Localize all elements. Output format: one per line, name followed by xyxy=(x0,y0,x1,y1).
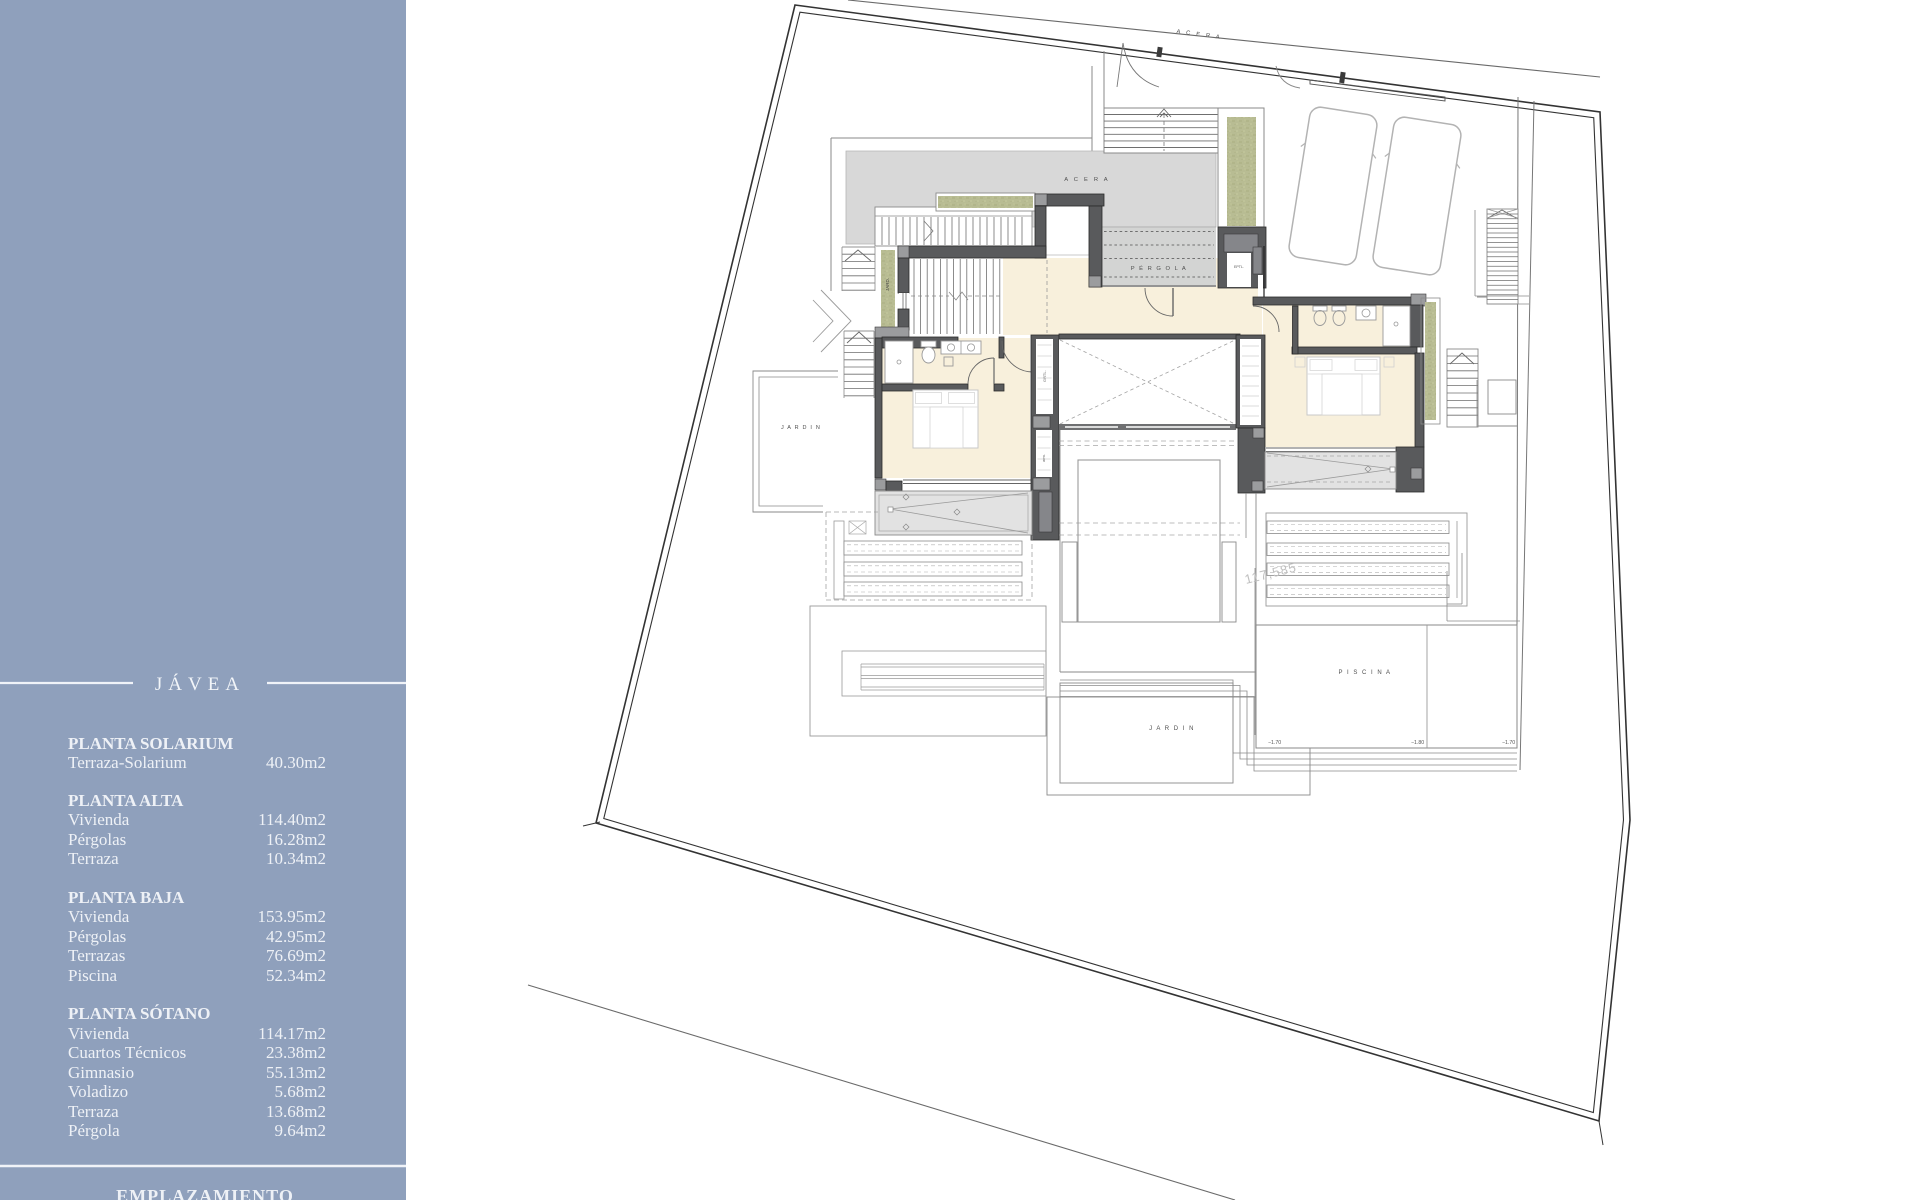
svg-text:P I S C I N A: P I S C I N A xyxy=(1338,670,1391,676)
svg-text:Terrazas: Terrazas xyxy=(68,946,125,965)
svg-text:40.30m2: 40.30m2 xyxy=(266,753,326,772)
svg-text:JÁVEA: JÁVEA xyxy=(155,673,245,695)
svg-text:Vivienda: Vivienda xyxy=(68,810,130,829)
svg-text:52.34m2: 52.34m2 xyxy=(266,966,326,985)
svg-text:10.34m2: 10.34m2 xyxy=(266,849,326,868)
svg-text:J A R D I N: J A R D I N xyxy=(1149,726,1195,732)
svg-text:−1.70: −1.70 xyxy=(1502,740,1515,746)
svg-text:Gimnasio: Gimnasio xyxy=(68,1063,134,1082)
svg-text:Voladizo: Voladizo xyxy=(68,1082,128,1101)
svg-text:153.95m2: 153.95m2 xyxy=(258,907,326,926)
svg-text:Piscina: Piscina xyxy=(68,966,118,985)
svg-text:J A R D I N: J A R D I N xyxy=(781,425,821,431)
svg-text:GRTL.: GRTL. xyxy=(1042,370,1047,382)
svg-text:Cuartos Técnicos: Cuartos Técnicos xyxy=(68,1043,186,1062)
svg-text:5.68m2: 5.68m2 xyxy=(275,1082,326,1101)
svg-text:23.38m2: 23.38m2 xyxy=(266,1043,326,1062)
svg-text:Vivienda: Vivienda xyxy=(68,1024,130,1043)
svg-text:42.95m2: 42.95m2 xyxy=(266,927,326,946)
svg-text:PLANTA BAJA: PLANTA BAJA xyxy=(68,888,185,907)
svg-text:−1.70: −1.70 xyxy=(1268,740,1281,746)
svg-text:arm.: arm. xyxy=(1041,454,1046,462)
svg-text:114.17m2: 114.17m2 xyxy=(258,1024,326,1043)
svg-text:Terraza: Terraza xyxy=(68,1102,119,1121)
svg-text:13.68m2: 13.68m2 xyxy=(266,1102,326,1121)
svg-text:PLANTA SÓTANO: PLANTA SÓTANO xyxy=(68,1004,210,1023)
svg-text:EPTL.: EPTL. xyxy=(1234,265,1244,269)
svg-text:Vivienda: Vivienda xyxy=(68,907,130,926)
svg-text:9.64m2: 9.64m2 xyxy=(275,1121,326,1140)
svg-text:16.28m2: 16.28m2 xyxy=(266,830,326,849)
svg-text:EMPLAZAMIENTO: EMPLAZAMIENTO xyxy=(116,1186,294,1200)
svg-text:P É R G O L A: P É R G O L A xyxy=(1131,265,1188,272)
svg-text:Pérgola: Pérgola xyxy=(68,1121,120,1140)
svg-text:114.40m2: 114.40m2 xyxy=(258,810,326,829)
svg-text:A C E R A: A C E R A xyxy=(1064,177,1110,183)
svg-text:Terraza-Solarium: Terraza-Solarium xyxy=(68,753,187,772)
svg-text:A C E R A: A C E R A xyxy=(1176,29,1222,41)
svg-text:JARD.: JARD. xyxy=(885,278,890,291)
svg-text:−1.80: −1.80 xyxy=(1411,740,1424,746)
svg-text:PLANTA SOLARIUM: PLANTA SOLARIUM xyxy=(68,734,233,753)
svg-text:Terraza: Terraza xyxy=(68,849,119,868)
svg-text:PLANTA ALTA: PLANTA ALTA xyxy=(68,791,184,810)
svg-text:76.69m2: 76.69m2 xyxy=(266,946,326,965)
svg-text:Pérgolas: Pérgolas xyxy=(68,927,126,946)
svg-text:55.13m2: 55.13m2 xyxy=(266,1063,326,1082)
svg-text:Pérgolas: Pérgolas xyxy=(68,830,126,849)
